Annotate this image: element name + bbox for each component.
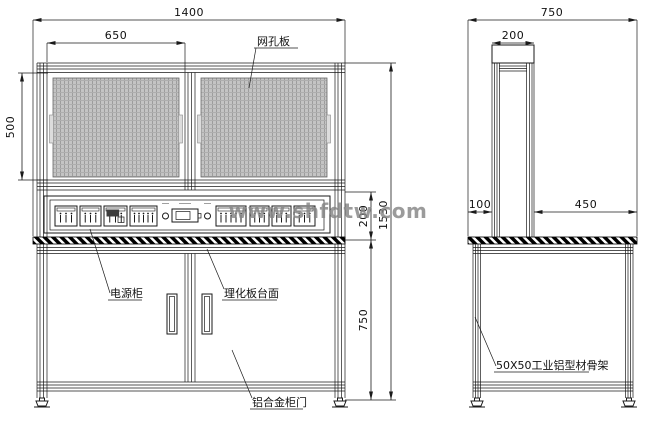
dim-mesh-panel-height: 500 <box>4 73 48 180</box>
dim-column-depth: 200 <box>492 29 534 43</box>
panel-hinge-tab <box>198 115 202 143</box>
dim-mesh-panel-width-text: 650 <box>105 29 128 42</box>
dim-front-offset-text: 100 <box>469 198 492 211</box>
label-countertop: 理化板台面 <box>207 249 279 300</box>
label-cabinet-door-text: 铝合金柜门 <box>252 395 307 409</box>
watermark-text: www.shfdtw.com <box>229 199 428 223</box>
dim-table-depth: 450 <box>534 198 637 212</box>
dim-front-offset: 100 <box>468 198 492 212</box>
panel-hinge-tab <box>50 115 54 143</box>
leveling-foot <box>469 398 485 407</box>
dim-total-depth-text: 750 <box>541 6 564 19</box>
countertop-front <box>33 237 345 244</box>
label-aluminium-frame: 50X50工业铝型材骨架 <box>475 317 609 372</box>
dim-total-height: 1530 <box>345 63 396 400</box>
side-column <box>492 45 534 237</box>
indicator-lamp <box>205 213 211 219</box>
label-power-cabinet-text: 电源柜 <box>110 286 143 300</box>
label-mesh-panel-text: 网孔板 <box>257 34 290 48</box>
door-handle-left <box>167 294 177 334</box>
panel-hinge-tab <box>327 115 331 143</box>
label-countertop-text: 理化板台面 <box>224 286 279 300</box>
label-cabinet-door: 铝合金柜门 <box>232 350 307 409</box>
label-aluminium-frame-text: 50X50工业铝型材骨架 <box>496 358 609 372</box>
side-bench-lines <box>473 244 633 398</box>
mesh-panel-left <box>50 78 183 177</box>
mesh-panel-right <box>198 78 331 177</box>
leveling-foot <box>34 398 50 407</box>
leveling-foot <box>332 398 348 407</box>
indicator-lamp <box>163 213 169 219</box>
dim-bench-height: 750 <box>345 240 376 400</box>
dim-table-depth-text: 450 <box>575 198 598 211</box>
side-view: 750 200 100 450 50X50工业铝型材骨架 <box>468 6 637 407</box>
technical-drawing-canvas: 1400 650 500 200 750 1 <box>0 0 657 426</box>
cad-drawing: 1400 650 500 200 750 1 <box>0 0 657 426</box>
dim-mesh-panel-height-text: 500 <box>4 116 17 139</box>
dim-mesh-panel-width: 650 <box>47 29 185 72</box>
dim-total-depth: 750 <box>468 6 637 236</box>
countertop-side <box>468 237 637 244</box>
dim-column-depth-text: 200 <box>502 29 525 42</box>
leveling-foot <box>621 398 637 407</box>
door-handle-right <box>202 294 212 334</box>
dim-total-width-text: 1400 <box>174 6 204 19</box>
dim-bench-height-text: 750 <box>357 309 370 332</box>
panel-hinge-tab <box>179 115 183 143</box>
